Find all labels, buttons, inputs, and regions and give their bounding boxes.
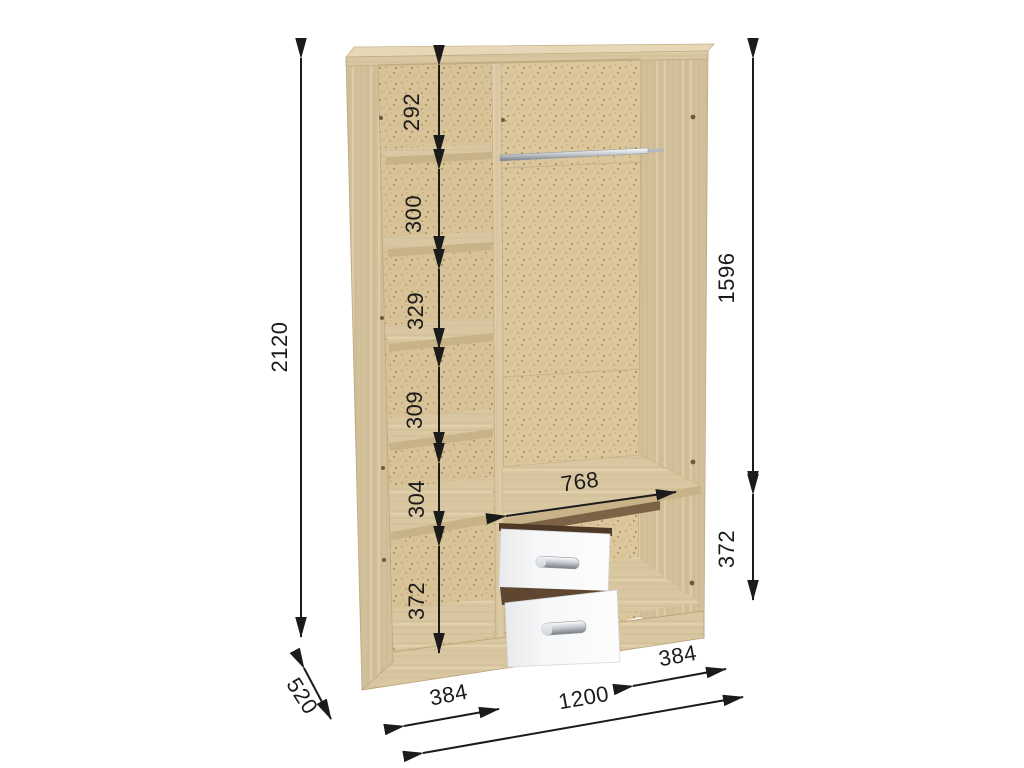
dim-label-total-height: 2120 [267,322,292,373]
diagram-canvas: 2120 292 300 329 309 304 372 1596 372 7 [0,0,1024,768]
upper-drawer-handle [536,556,580,569]
right-side-panel [638,51,708,638]
dim-label-hanging-height: 1596 [714,253,739,304]
dim-label-gap-6: 372 [404,582,429,620]
wardrobe [346,44,714,690]
wardrobe-dimension-diagram: 2120 292 300 329 309 304 372 1596 372 7 [0,0,1024,768]
drawers [499,523,620,667]
dim-label-gap-4: 309 [402,391,427,429]
dim-label-gap-5: 304 [404,480,429,518]
dim-label-gap-2: 300 [401,195,426,233]
dim-label-drawer-section-height: 372 [714,530,739,568]
dim-label-gap-3: 329 [403,292,428,330]
dim-label-gap-1: 292 [399,93,424,131]
dim-label-hanging-width: 768 [559,467,600,497]
